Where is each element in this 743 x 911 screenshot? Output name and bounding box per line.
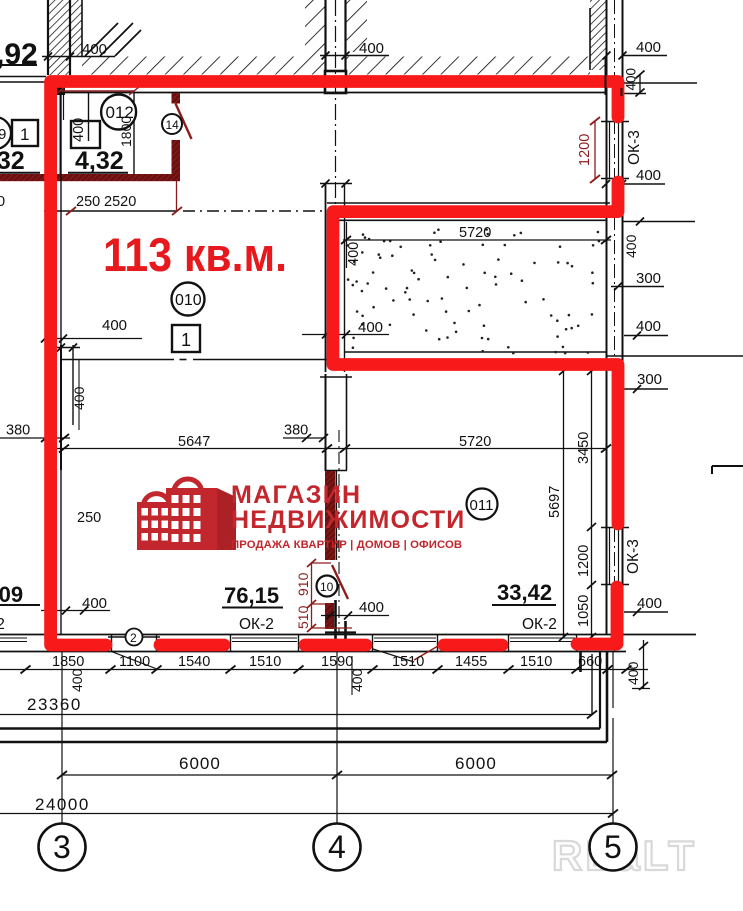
svg-text:24000: 24000 (35, 795, 90, 814)
svg-text:5: 5 (604, 829, 622, 865)
svg-text:ОК-2: ОК-2 (522, 616, 557, 633)
svg-text:400: 400 (636, 167, 661, 184)
svg-text:011: 011 (470, 497, 494, 514)
svg-text:ОК-2: ОК-2 (0, 616, 5, 633)
svg-text:1200: 1200 (577, 134, 593, 166)
svg-text:3450: 3450 (576, 432, 592, 464)
svg-text:400: 400 (71, 118, 87, 142)
svg-text:1100: 1100 (119, 654, 150, 670)
svg-text:1: 1 (181, 330, 191, 350)
svg-text:400: 400 (102, 317, 127, 334)
svg-text:76,09: 76,09 (0, 582, 23, 607)
svg-text:2520: 2520 (104, 194, 136, 210)
svg-text:ОК-3: ОК-3 (625, 539, 642, 574)
svg-text:400: 400 (346, 242, 362, 266)
svg-text:1850: 1850 (52, 654, 84, 670)
svg-text:400: 400 (359, 599, 384, 616)
svg-text:5647: 5647 (178, 434, 210, 450)
svg-text:380: 380 (6, 423, 30, 439)
svg-text:0: 0 (0, 194, 5, 210)
svg-text:1540: 1540 (178, 654, 210, 670)
svg-text:1455: 1455 (455, 654, 487, 670)
svg-text:9: 9 (0, 126, 6, 143)
svg-text:ПРОДАЖА КВАРТИР | ДОМОВ | ОФИС: ПРОДАЖА КВАРТИР | ДОМОВ | ОФИСОВ (231, 539, 462, 551)
svg-text:3: 3 (53, 829, 71, 865)
svg-text:14: 14 (166, 118, 180, 132)
svg-text:33,42: 33,42 (497, 580, 552, 605)
svg-text:400: 400 (623, 234, 639, 258)
svg-text:1510: 1510 (520, 654, 552, 670)
svg-text:23360: 23360 (27, 695, 82, 714)
svg-text:400: 400 (625, 661, 641, 685)
svg-text:4,32: 4,32 (75, 147, 124, 175)
svg-text:400: 400 (69, 668, 85, 692)
svg-text:10: 10 (320, 580, 334, 594)
svg-text:910: 910 (295, 572, 311, 596)
svg-text:1200: 1200 (576, 545, 592, 577)
svg-text:400: 400 (624, 68, 639, 91)
svg-text:1510: 1510 (392, 654, 424, 670)
svg-text:380: 380 (284, 423, 308, 439)
svg-text:400: 400 (82, 41, 107, 58)
svg-text:1: 1 (20, 125, 29, 144)
svg-text:2: 2 (130, 631, 137, 645)
svg-text:113 кв.м.: 113 кв.м. (103, 228, 287, 281)
svg-text:010: 010 (175, 292, 202, 309)
svg-text:4,32: 4,32 (0, 147, 25, 175)
svg-text:300: 300 (636, 270, 661, 287)
svg-text:250: 250 (77, 510, 101, 526)
svg-text:6000: 6000 (455, 754, 497, 773)
svg-text:ОК-3: ОК-3 (626, 130, 643, 165)
svg-text:6000: 6000 (179, 754, 221, 773)
svg-text:,92: ,92 (0, 38, 38, 71)
svg-text:1800: 1800 (118, 116, 134, 147)
svg-text:5697: 5697 (547, 486, 563, 518)
svg-text:400: 400 (358, 319, 383, 336)
svg-text:1050: 1050 (576, 595, 592, 627)
svg-text:400: 400 (349, 668, 365, 692)
svg-text:510: 510 (295, 605, 311, 629)
svg-text:5720: 5720 (459, 225, 491, 241)
svg-text:ОК-2: ОК-2 (239, 616, 274, 633)
svg-text:400: 400 (636, 39, 661, 56)
svg-text:4: 4 (328, 829, 346, 865)
svg-text:250: 250 (76, 194, 100, 210)
svg-text:МАГАЗИН: МАГАЗИН (231, 481, 361, 509)
svg-text:5720: 5720 (459, 434, 491, 450)
svg-text:1510: 1510 (249, 654, 281, 670)
svg-text:76,15: 76,15 (224, 583, 279, 608)
svg-text:400: 400 (359, 40, 384, 57)
svg-text:НЕДВИЖИМОСТИ: НЕДВИЖИМОСТИ (231, 506, 465, 534)
